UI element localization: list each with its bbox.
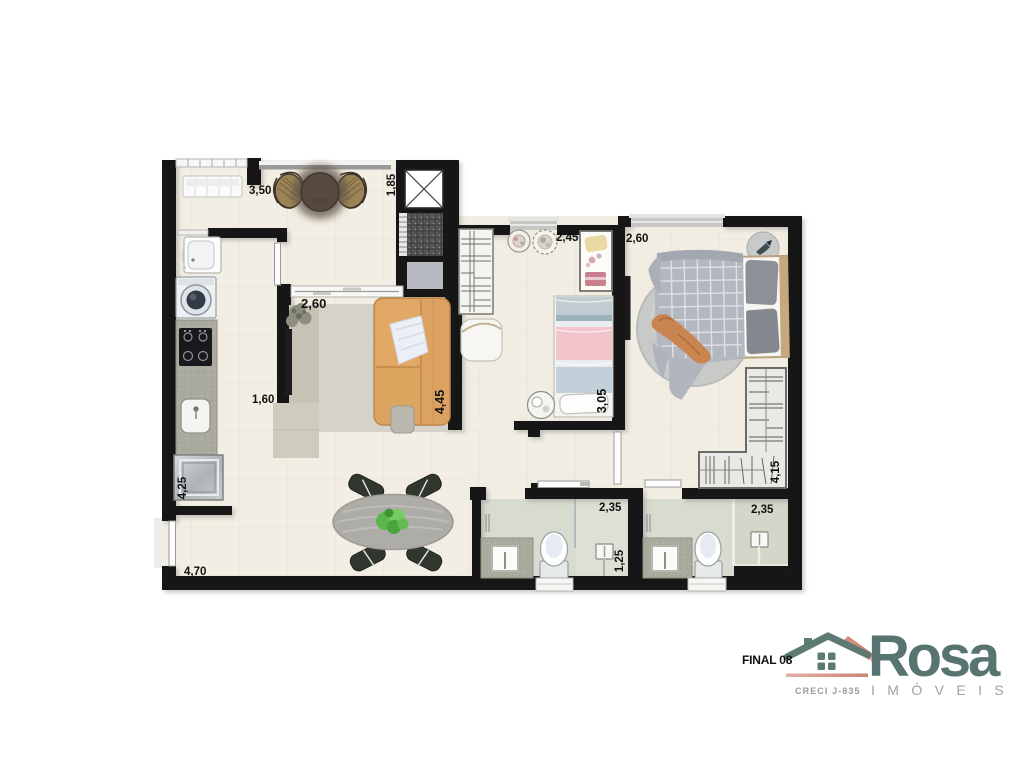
svg-text:Rosa: Rosa — [868, 624, 1001, 689]
svg-text:2,35: 2,35 — [599, 502, 622, 514]
svg-text:2,60: 2,60 — [301, 296, 326, 311]
svg-text:4,45: 4,45 — [433, 390, 447, 414]
svg-text:CRECI J-835: CRECI J-835 — [795, 686, 861, 696]
svg-text:1,25: 1,25 — [614, 549, 626, 572]
svg-text:2,45: 2,45 — [556, 232, 579, 244]
svg-text:FINAL 08: FINAL 08 — [742, 653, 793, 667]
svg-text:1,85: 1,85 — [386, 173, 398, 196]
svg-text:4,25: 4,25 — [177, 476, 189, 499]
svg-text:3,50: 3,50 — [249, 185, 271, 197]
svg-text:2,60: 2,60 — [626, 233, 648, 245]
svg-text:1,60: 1,60 — [252, 394, 274, 406]
svg-text:4,15: 4,15 — [770, 460, 782, 483]
svg-text:2,35: 2,35 — [751, 504, 774, 516]
svg-text:3,05: 3,05 — [595, 389, 609, 413]
svg-text:4,70: 4,70 — [184, 566, 206, 578]
svg-text:IMÓVEIS: IMÓVEIS — [871, 682, 1016, 698]
